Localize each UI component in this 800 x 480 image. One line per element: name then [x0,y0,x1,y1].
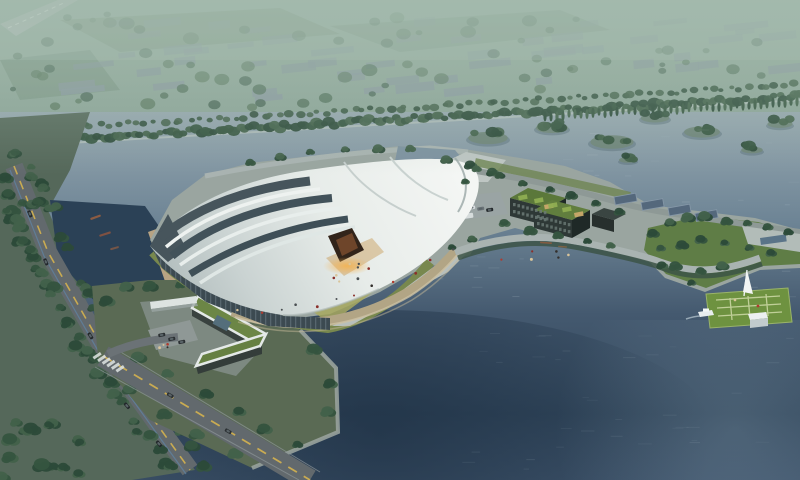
aerial-rendering [0,0,800,480]
entrance-glow [323,257,371,275]
boat-cabin [703,309,709,312]
lake-bright-ripple-patch [480,320,800,480]
horizon-haze [0,0,800,60]
scene-svg [0,0,800,480]
